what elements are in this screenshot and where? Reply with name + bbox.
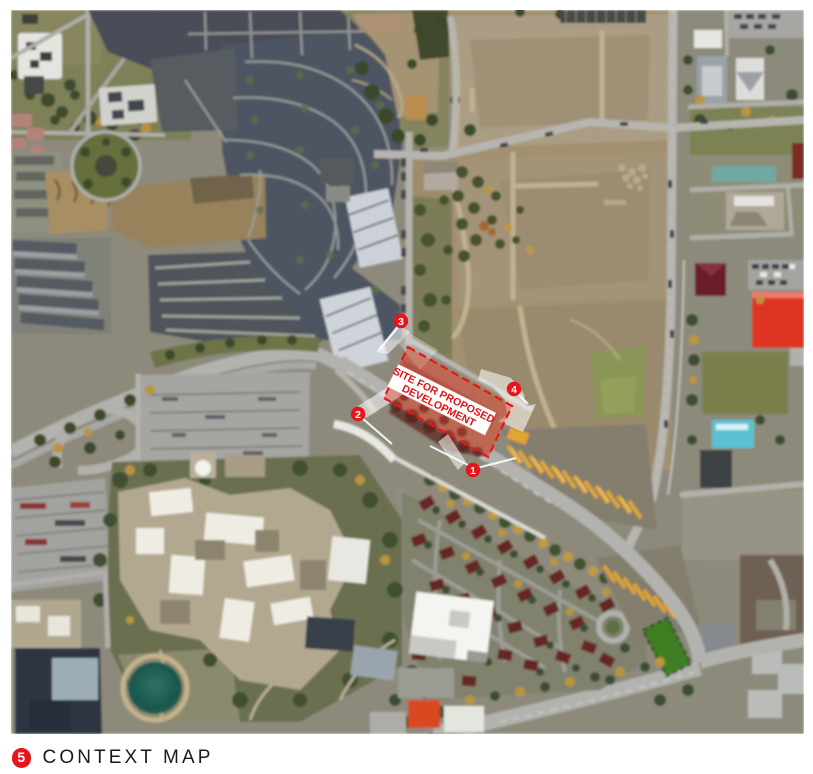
svg-text:3: 3: [398, 316, 404, 328]
svg-text:4: 4: [511, 384, 517, 396]
svg-text:2: 2: [355, 409, 361, 421]
svg-text:1: 1: [470, 465, 476, 477]
